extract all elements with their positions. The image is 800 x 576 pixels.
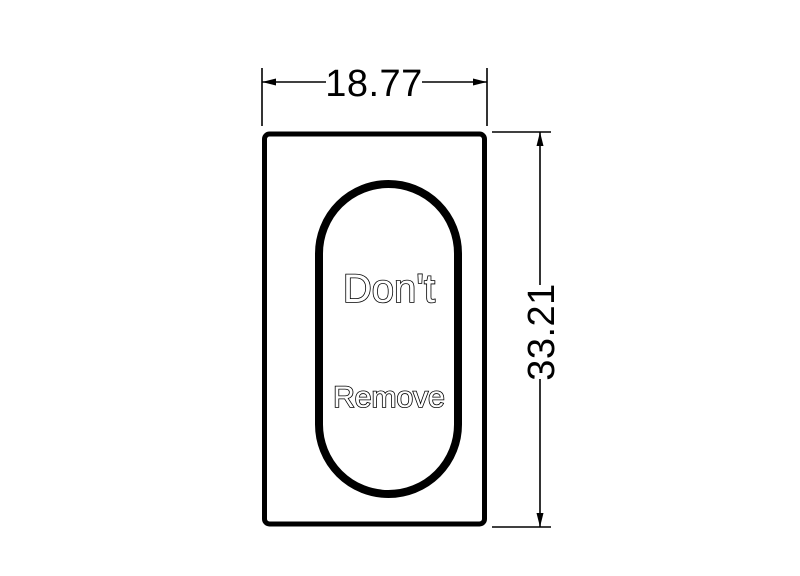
width-arrow-left-icon xyxy=(262,79,276,86)
width-dimension-value: 18.77 xyxy=(325,63,423,105)
plate-outline xyxy=(265,134,485,524)
technical-drawing: Don't Remove 18.77 33.21 xyxy=(0,0,800,576)
slot-outline xyxy=(319,184,458,494)
height-arrow-bottom-icon xyxy=(537,513,544,527)
slot-label-line1: Don't xyxy=(343,267,435,311)
height-dimension-value: 33.21 xyxy=(521,283,563,381)
drawing-canvas: Don't Remove 18.77 33.21 xyxy=(0,0,800,576)
width-arrow-right-icon xyxy=(473,79,487,86)
slot-label-line2: Remove xyxy=(333,381,445,414)
height-arrow-top-icon xyxy=(537,132,544,146)
